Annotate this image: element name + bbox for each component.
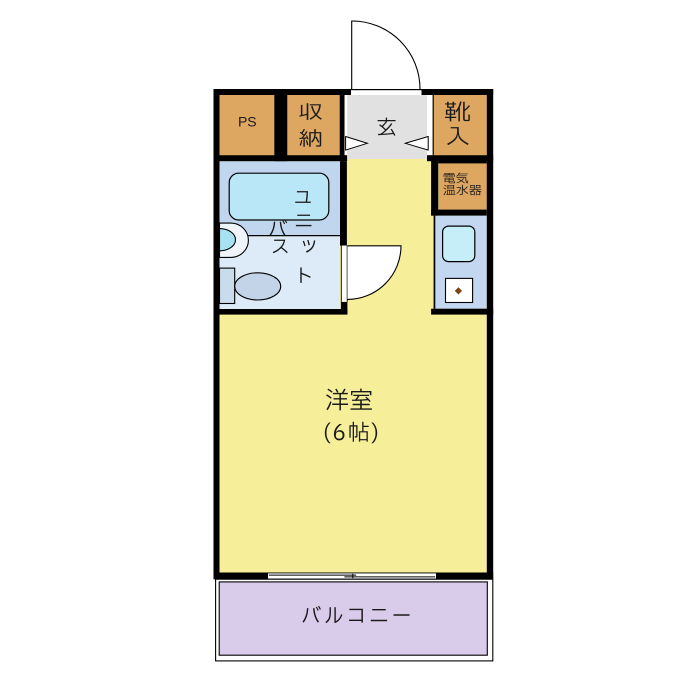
svg-text:PS: PS — [238, 114, 257, 130]
